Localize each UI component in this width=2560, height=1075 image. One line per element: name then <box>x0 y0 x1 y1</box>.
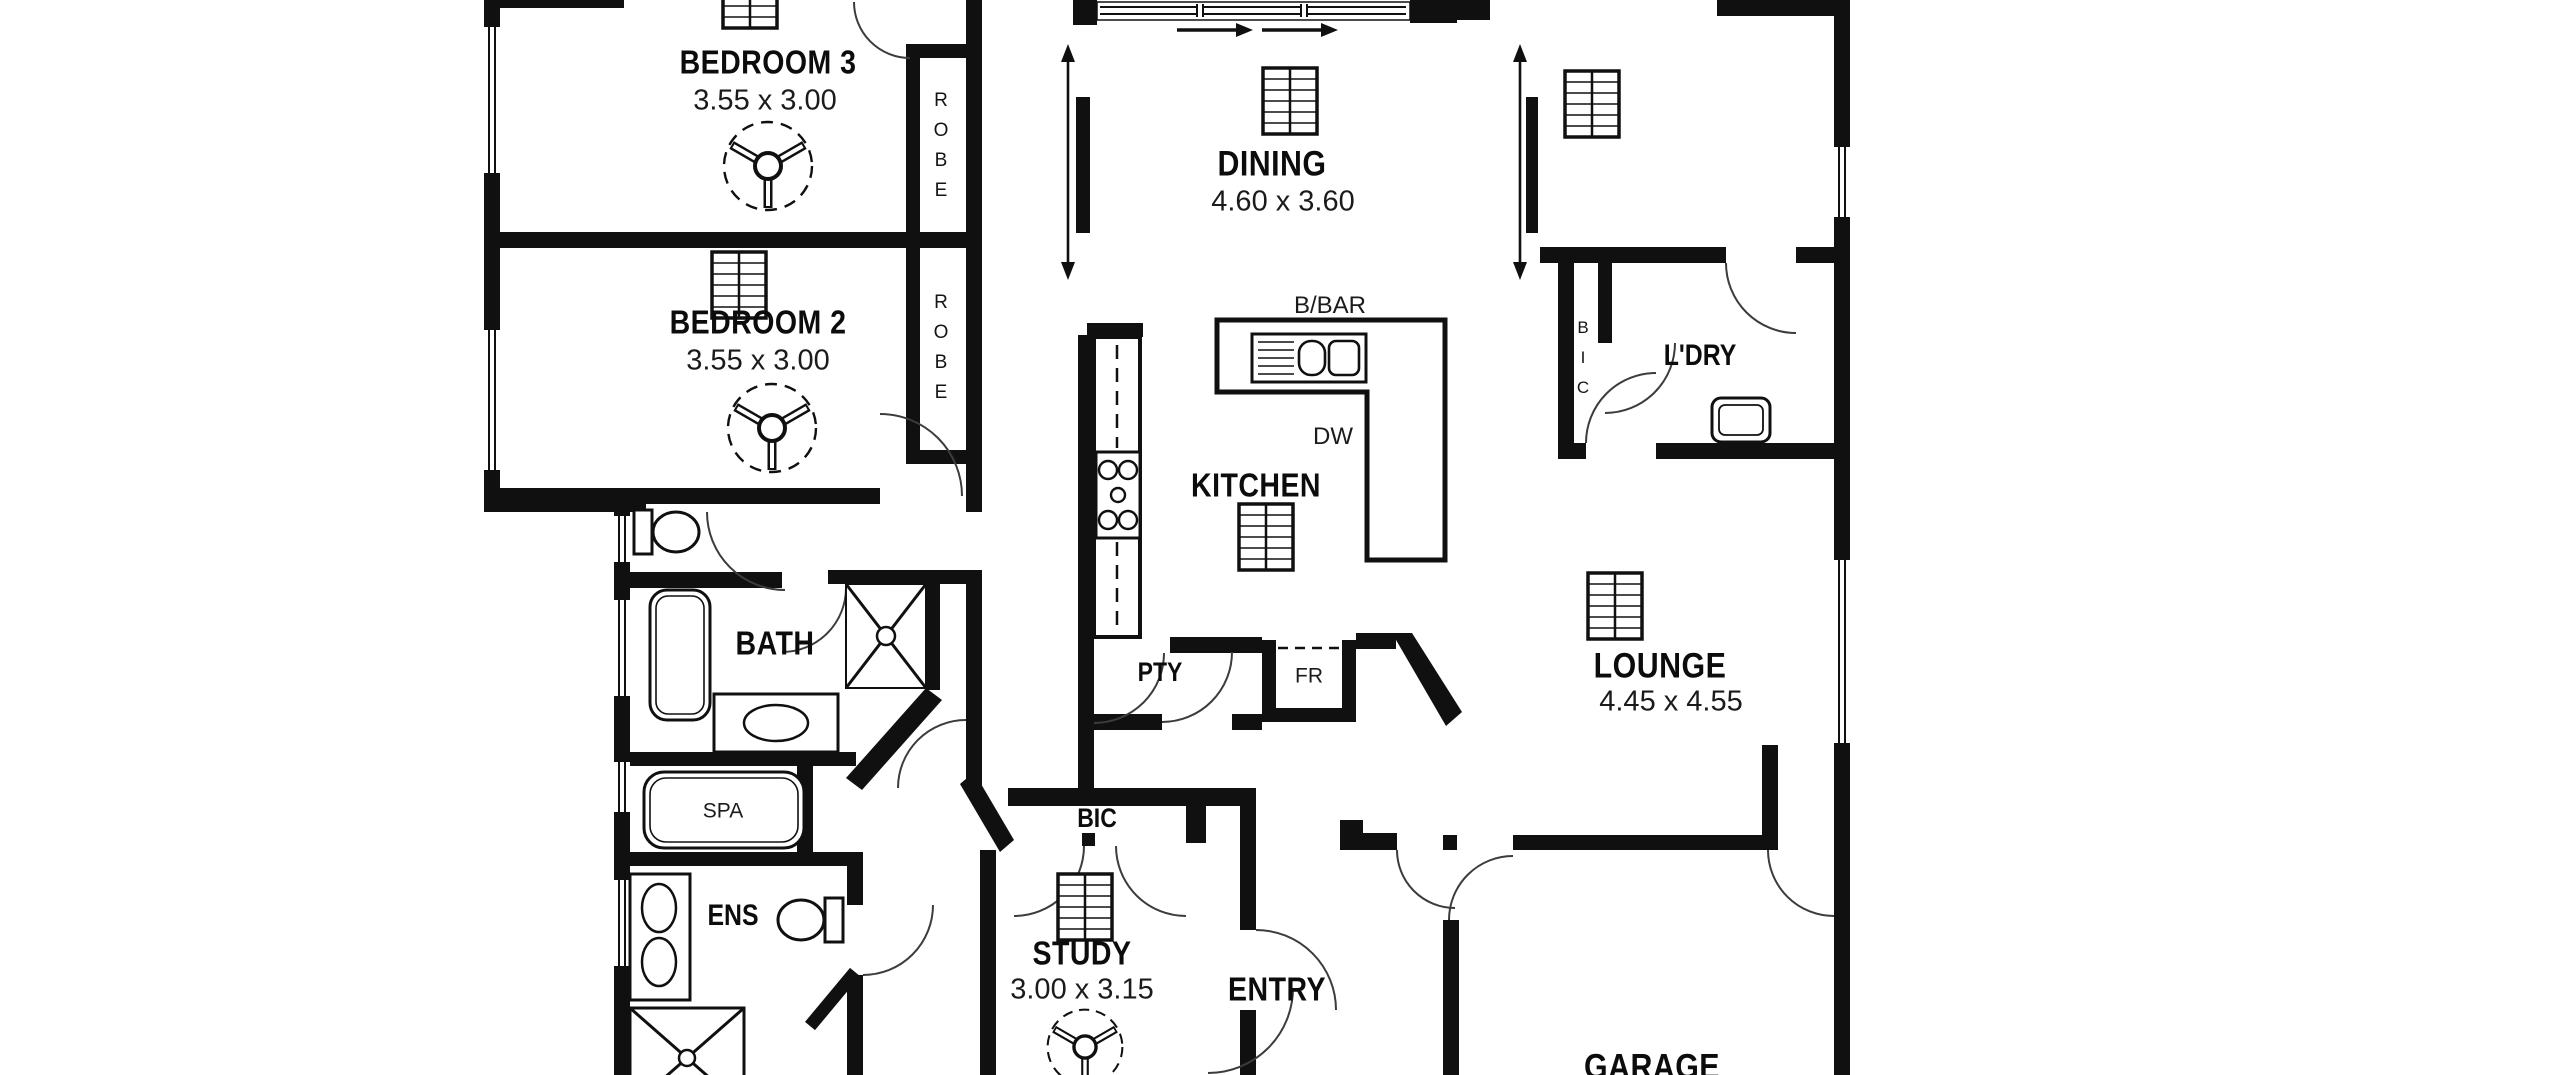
window-lounge <box>1834 560 1850 743</box>
opening-arrow-icon-left <box>1061 44 1075 280</box>
bath-label: BATH <box>736 626 815 659</box>
window-laundry <box>1834 147 1850 217</box>
lounge-label: LOUNGE <box>1594 647 1727 683</box>
bath-shower-icon <box>846 584 926 688</box>
bedroom3-dims: 3.55 x 3.00 <box>693 87 837 116</box>
robe-bed3-label: ROBE <box>932 90 951 210</box>
window-wc <box>614 516 630 562</box>
bic-laundry-label: BIC <box>1575 318 1592 408</box>
ens-shower-icon <box>630 1008 744 1075</box>
lounge-dims: 4.45 x 4.55 <box>1599 688 1743 717</box>
light-study-icon <box>1058 874 1112 940</box>
window-bed3 <box>484 27 500 173</box>
dw-label: DW <box>1313 425 1353 449</box>
window-ens <box>614 880 630 966</box>
window-bath <box>614 600 630 696</box>
kitchen-label: KITCHEN <box>1191 468 1321 501</box>
light-kitchen-icon <box>1239 504 1293 570</box>
kitchen-sink-icon <box>1252 334 1366 382</box>
bedroom3-label: BEDROOM 3 <box>680 45 857 78</box>
entry-label: ENTRY <box>1228 972 1326 1005</box>
ens-vanity <box>630 874 690 1000</box>
window-bed2 <box>484 330 500 470</box>
pantry-label: PTY <box>1138 660 1183 687</box>
bath-vanity <box>714 694 838 752</box>
wc-toilet-icon <box>634 510 699 554</box>
study-dims: 3.00 x 3.15 <box>1010 976 1154 1005</box>
dining-dims: 4.60 x 3.60 <box>1211 188 1355 217</box>
fan-study-icon <box>1048 1010 1123 1075</box>
study-label: STUDY <box>1033 936 1132 969</box>
light-bed3-icon <box>723 0 777 28</box>
light-family-icon <box>1565 71 1619 137</box>
spa-label: SPA <box>703 801 743 822</box>
ens-label: ENS <box>707 901 758 930</box>
opening-arrow-icon-right <box>1513 44 1527 280</box>
bathtub-icon <box>650 590 710 720</box>
laundry-tub-icon <box>1712 398 1770 442</box>
kitchen-bench <box>1094 337 1140 637</box>
light-dining-icon <box>1263 68 1317 134</box>
fan-bed2-icon <box>728 384 816 472</box>
laundry-label: L'DRY <box>1664 341 1737 370</box>
bbar-label: B/BAR <box>1294 294 1366 318</box>
bic-study-label: BIC <box>1077 806 1117 833</box>
bedroom2-label: BEDROOM 2 <box>670 305 847 338</box>
window-spa <box>614 762 630 812</box>
garage-label: GARAGE <box>1584 1048 1720 1075</box>
slide-arrow-icon <box>1177 23 1338 37</box>
robe-bed2-label: ROBE <box>932 292 951 412</box>
floorplan: BEDROOM 3 3.55 x 3.00 ROBE BEDROOM 2 3.5… <box>0 0 2560 1075</box>
light-lounge-icon <box>1588 573 1642 639</box>
fan-bed3-icon <box>724 122 812 210</box>
bedroom2-dims: 3.55 x 3.00 <box>686 347 830 376</box>
ens-toilet-icon <box>778 898 843 942</box>
sliding-door <box>1097 2 1410 37</box>
fridge-label: FR <box>1295 666 1323 687</box>
dining-label: DINING <box>1217 145 1326 181</box>
cooktop-icon <box>1096 452 1140 538</box>
